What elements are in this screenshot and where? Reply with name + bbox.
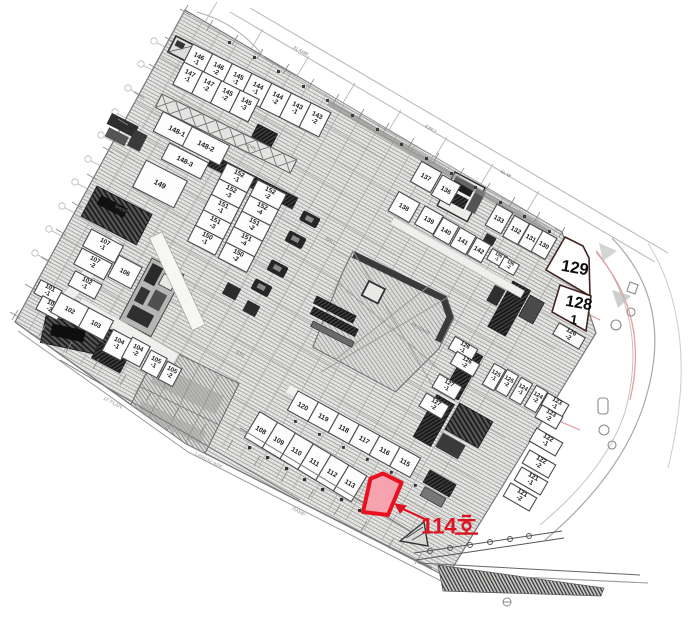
svg-text:114: 114 [421, 514, 457, 539]
